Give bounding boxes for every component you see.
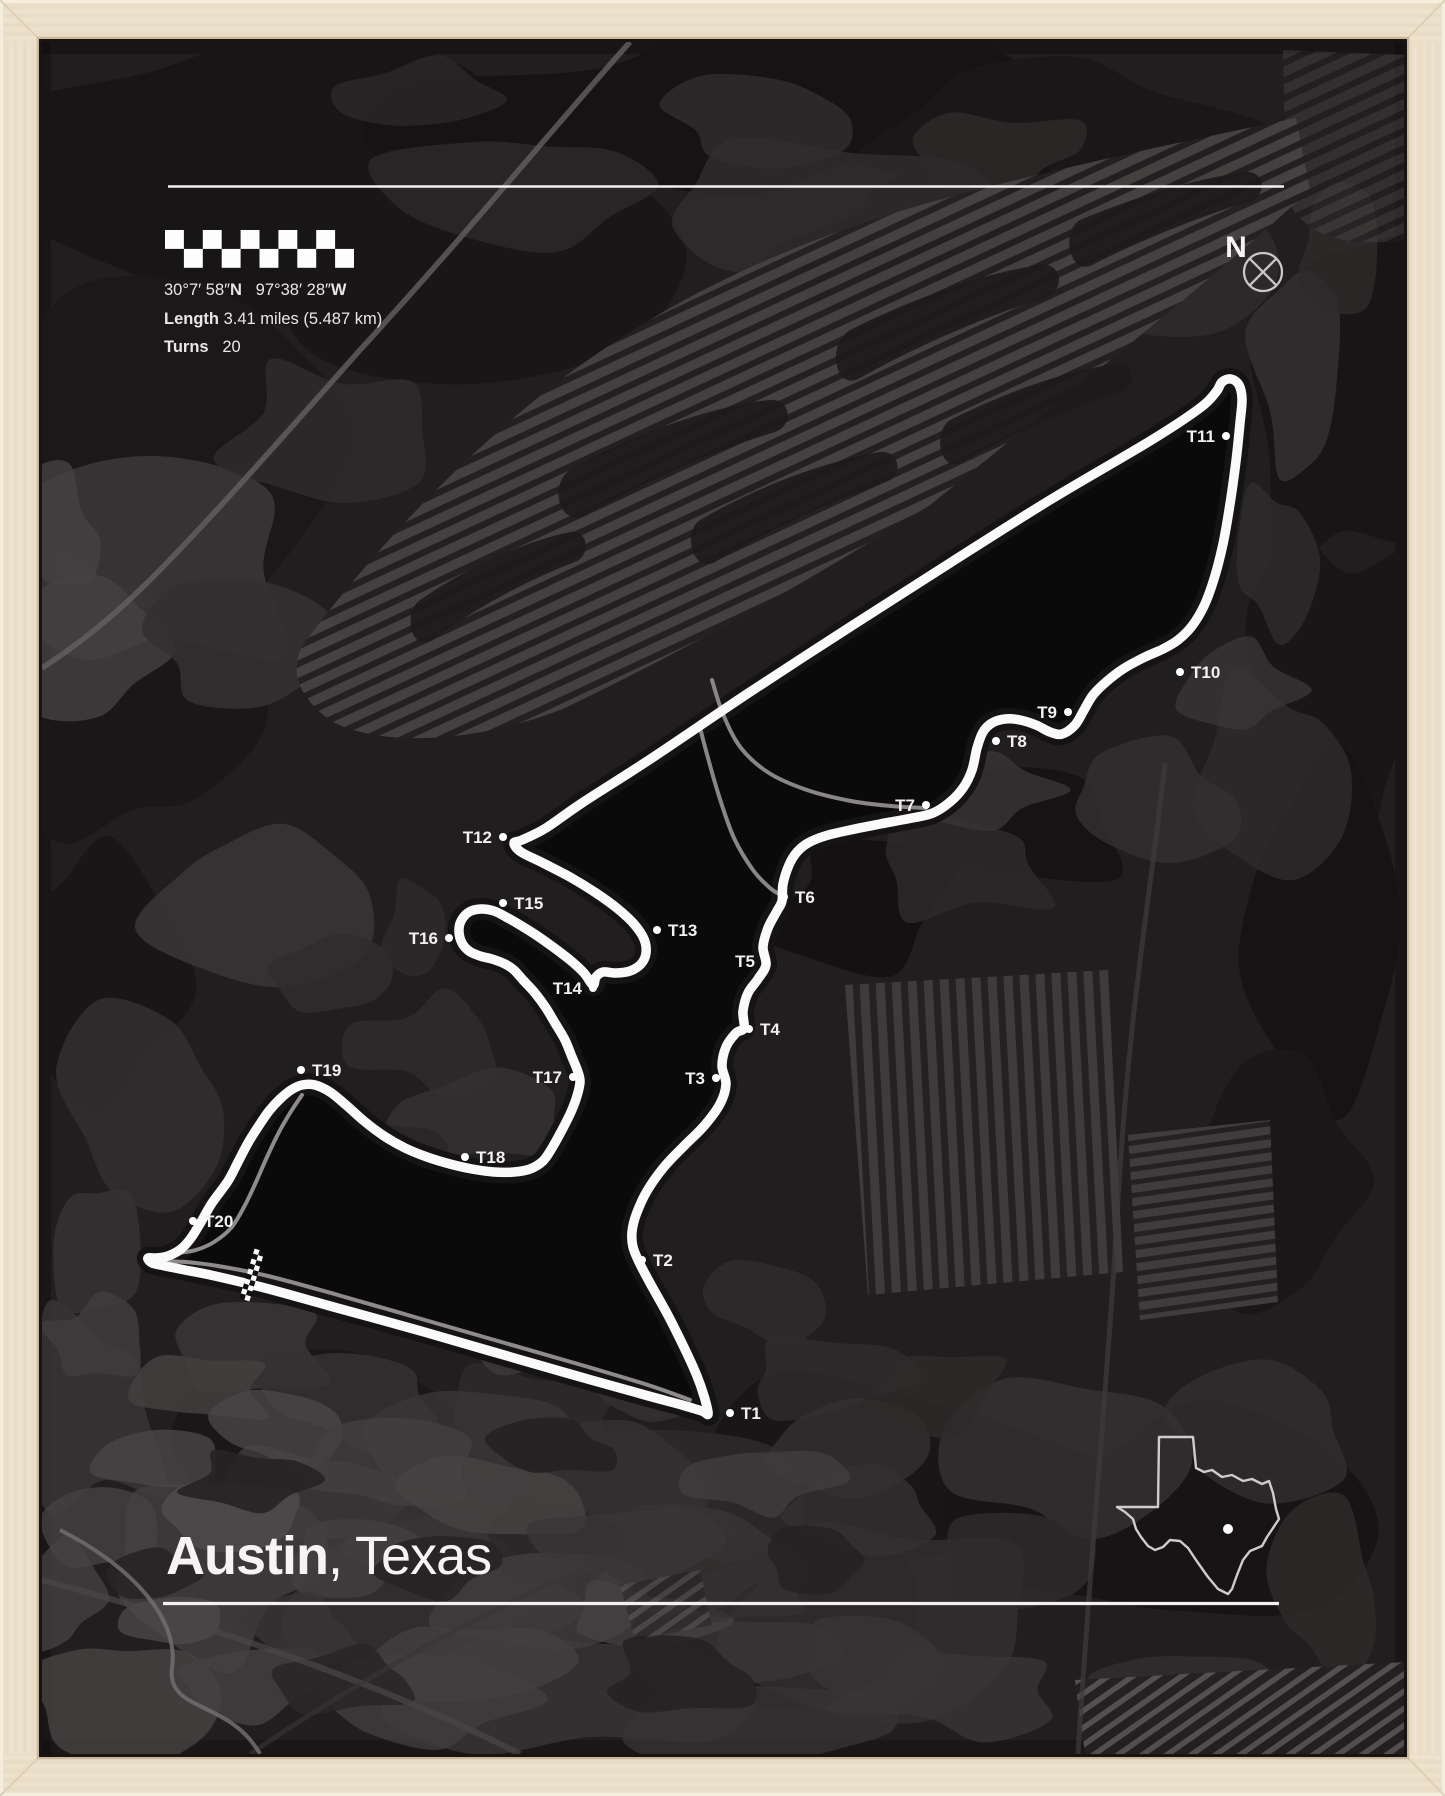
svg-text:Turns 20: Turns 20	[164, 338, 241, 356]
svg-text:T16: T16	[409, 929, 438, 948]
svg-text:30°7′ 58″N 97°38′ 28″W: 30°7′ 58″N 97°38′ 28″W	[164, 281, 347, 299]
svg-text:T13: T13	[668, 921, 697, 940]
svg-text:T17: T17	[533, 1068, 562, 1087]
svg-text:T20: T20	[204, 1212, 233, 1231]
svg-text:T14: T14	[553, 979, 583, 998]
svg-text:Austin, Texas: Austin, Texas	[166, 1526, 491, 1586]
svg-text:T19: T19	[312, 1061, 341, 1080]
svg-text:T6: T6	[795, 888, 815, 907]
svg-text:T11: T11	[1187, 427, 1215, 446]
svg-text:T7: T7	[895, 796, 915, 815]
svg-text:T4: T4	[760, 1020, 780, 1039]
svg-text:N: N	[1225, 231, 1247, 264]
svg-text:T8: T8	[1007, 732, 1027, 751]
svg-text:T3: T3	[685, 1069, 705, 1088]
svg-text:T9: T9	[1037, 703, 1057, 722]
svg-text:Length 3.41 miles (5.487 km): Length 3.41 miles (5.487 km)	[164, 310, 382, 328]
svg-text:T5: T5	[735, 952, 755, 971]
svg-text:T12: T12	[463, 828, 492, 847]
svg-text:T10: T10	[1191, 663, 1220, 682]
svg-text:T2: T2	[653, 1251, 673, 1270]
svg-text:T1: T1	[741, 1404, 761, 1423]
svg-text:T15: T15	[514, 894, 543, 913]
svg-text:T18: T18	[476, 1148, 505, 1167]
